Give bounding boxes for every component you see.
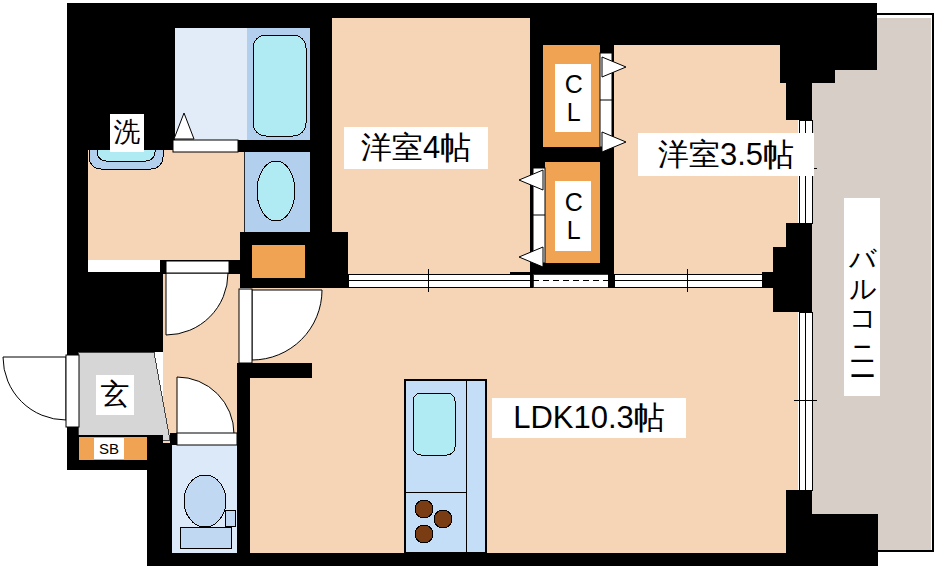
wall — [155, 553, 878, 566]
front-door-swing — [3, 357, 66, 420]
wall — [238, 140, 310, 152]
shoe-box-label: SB — [94, 438, 124, 459]
stove-burner-icon — [434, 510, 452, 528]
stove-burner-icon — [415, 525, 433, 543]
sink-basin-icon — [257, 161, 295, 221]
wall — [786, 83, 812, 120]
kitchen-sink-icon — [413, 393, 455, 455]
toilet-door-leaf — [177, 433, 237, 445]
sliding-opening-dashed — [533, 274, 608, 287]
balcony-label: バルコニー — [844, 198, 880, 396]
closet-upper-label: CL — [555, 64, 591, 132]
entrance-label: 玄 — [96, 375, 134, 415]
wall — [608, 272, 614, 288]
bathroom — [175, 28, 310, 140]
wall — [780, 3, 877, 70]
wall — [147, 443, 172, 566]
counter-storage — [252, 245, 305, 278]
wall — [332, 3, 532, 18]
toilet-bowl-icon — [184, 475, 226, 527]
vanity-sink — [244, 150, 310, 232]
front-door-leaf — [66, 355, 79, 427]
floor-plan: 洗 洋室4帖 CL CL 洋室3.5帖 バルコニー LDK10.3帖 玄 SB — [0, 0, 950, 570]
kitchen-unit — [405, 380, 486, 553]
wall — [530, 3, 812, 45]
toilet-flush-icon — [225, 510, 235, 526]
closet-lower-label: CL — [555, 181, 591, 251]
wall — [67, 150, 88, 272]
room35-label: 洋室3.5帖 — [638, 133, 814, 176]
ldk-label: LDK10.3帖 — [492, 398, 686, 438]
washroom-door-leaf — [166, 261, 229, 273]
washer-label: 洗 — [110, 114, 144, 152]
wall — [780, 70, 835, 83]
bathtub-icon — [253, 35, 306, 136]
wall — [175, 3, 332, 28]
room4-label: 洋室4帖 — [344, 127, 488, 169]
wall — [237, 363, 250, 553]
wall — [786, 223, 812, 312]
wall — [170, 433, 177, 445]
floor-plan-drawing — [0, 0, 950, 570]
ldk-door-leaf — [239, 289, 252, 363]
stove-burner-icon — [415, 500, 433, 518]
wall — [250, 363, 312, 378]
toilet-tank-icon — [180, 527, 231, 548]
bath-door-leaf — [173, 140, 238, 152]
wall — [798, 514, 878, 566]
wall — [67, 272, 163, 352]
toilet-room — [172, 445, 237, 553]
